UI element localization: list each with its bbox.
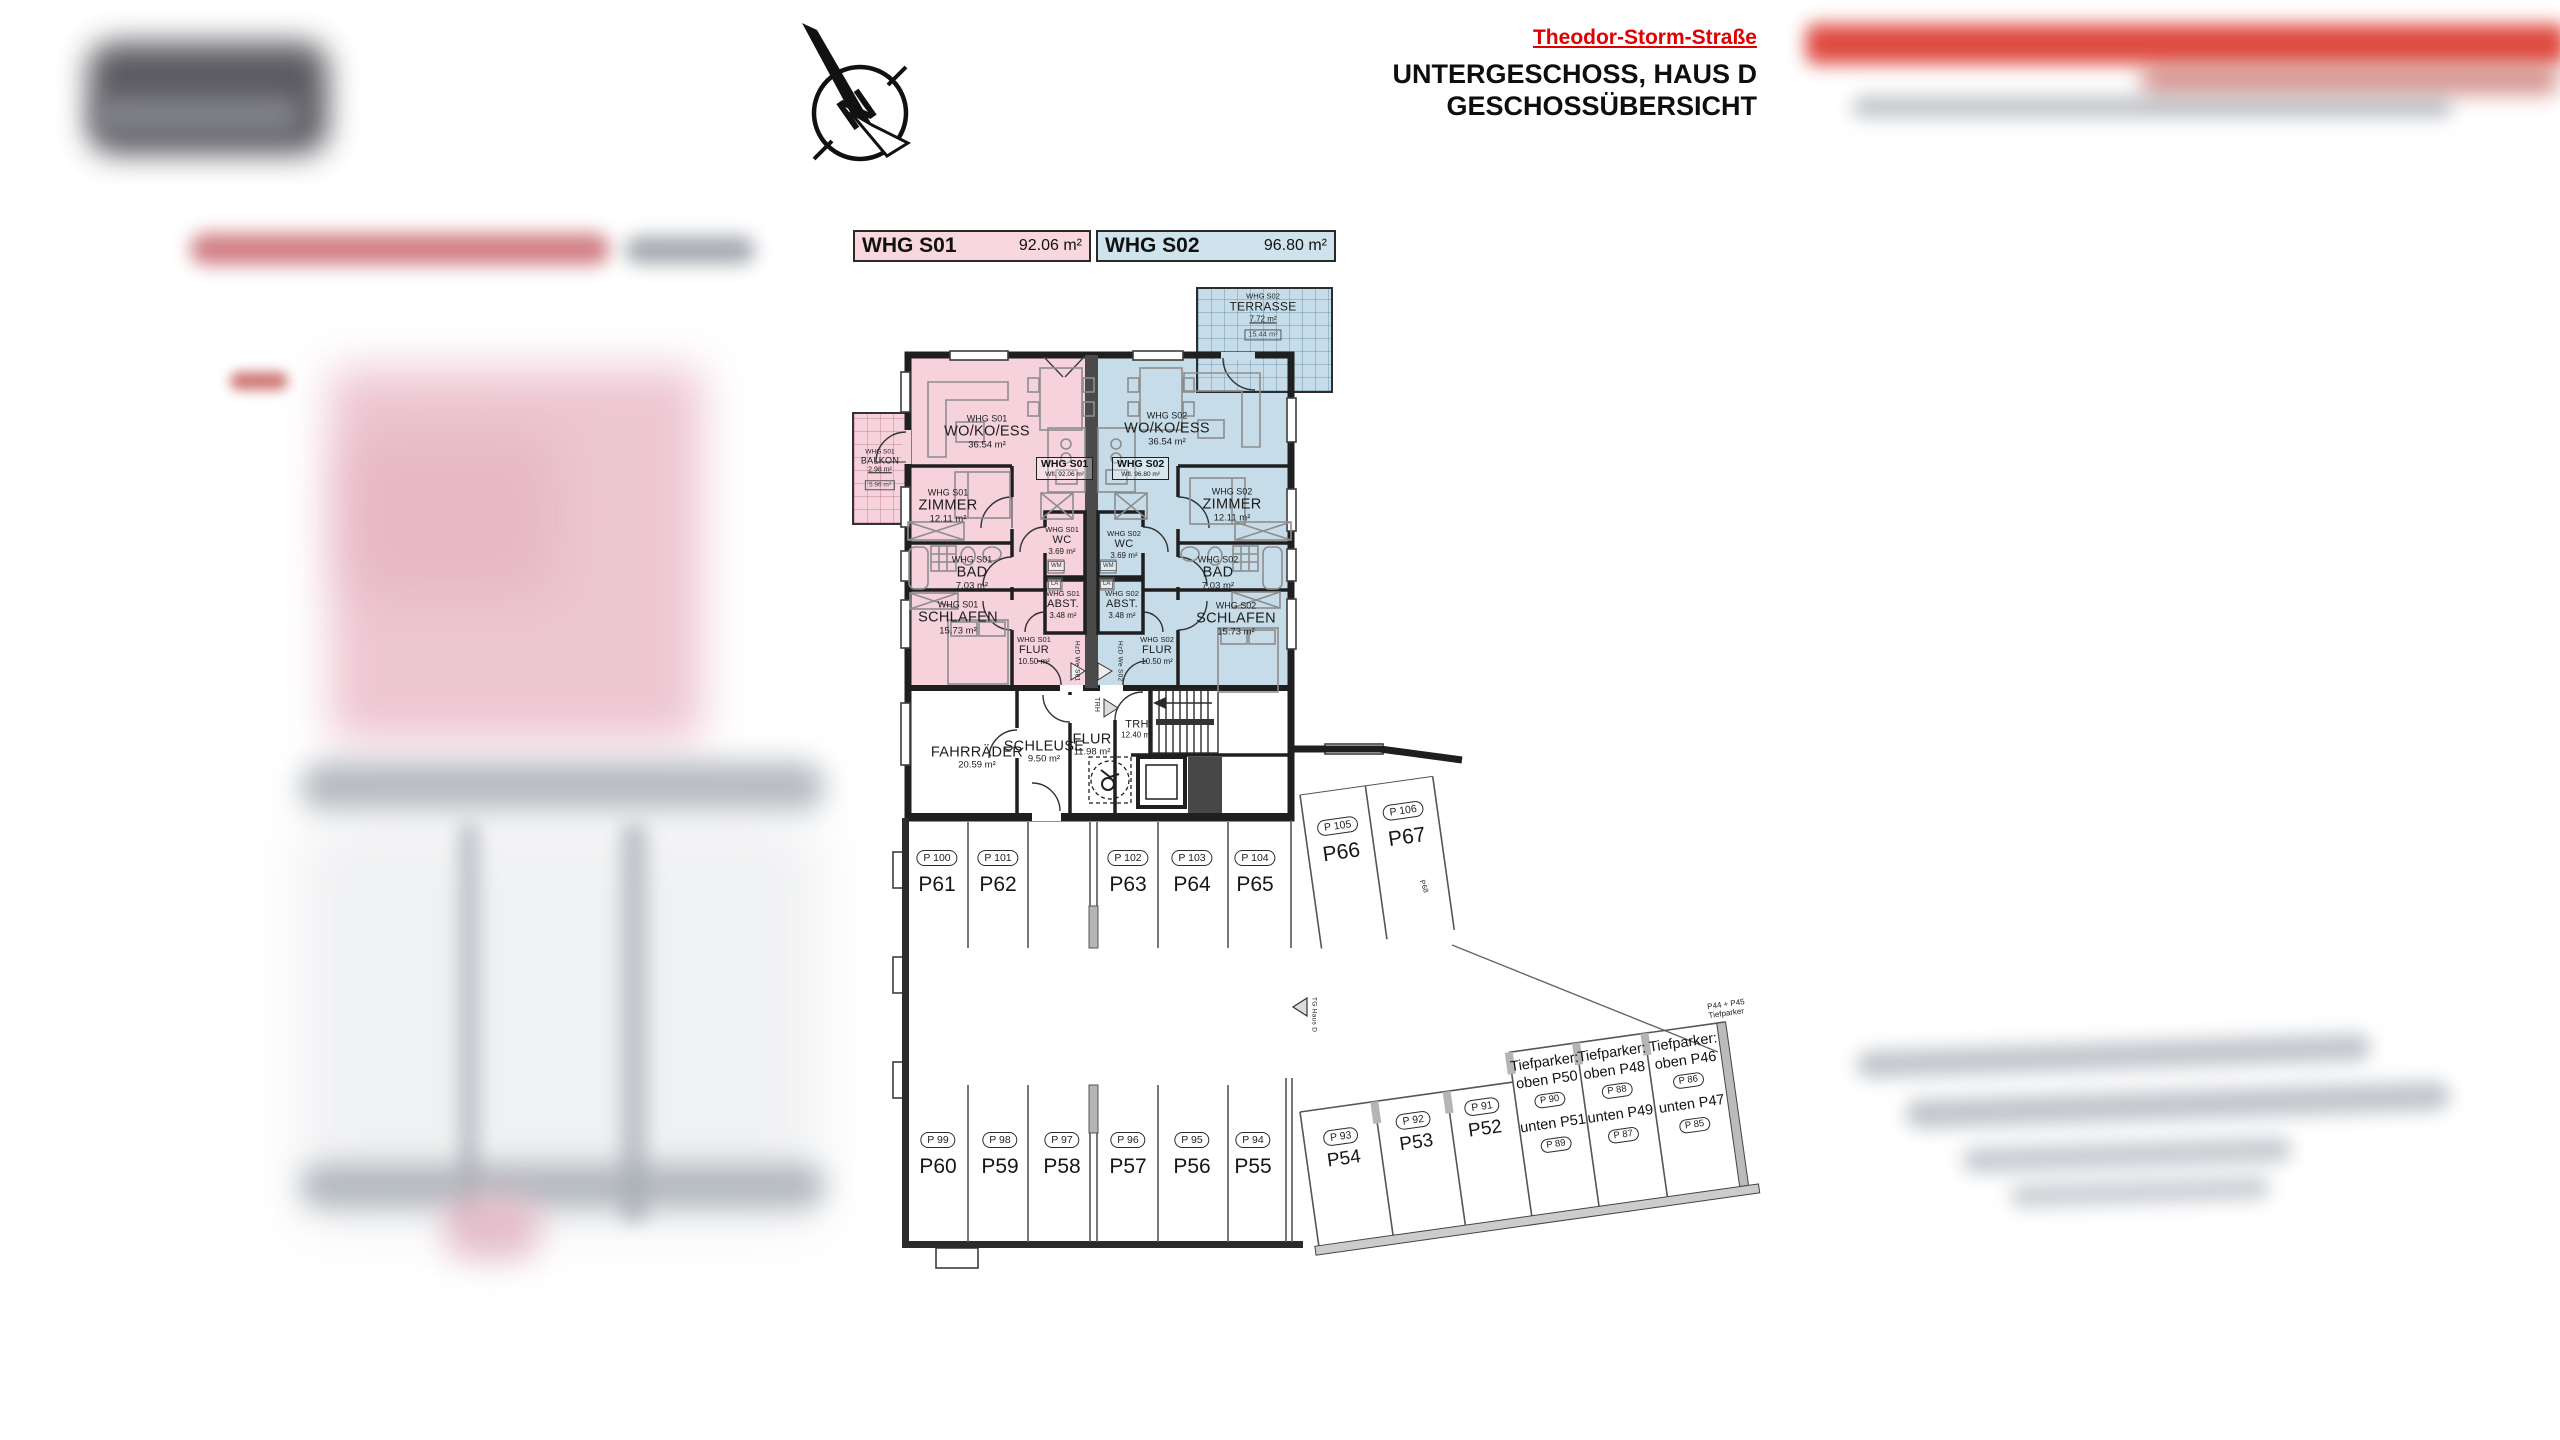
parking-stall-p54: P 93P54 <box>1322 1124 1363 1173</box>
trh-arrow-label: TRH <box>1093 697 1100 712</box>
room-label-s02-schlafen: WHG S02SCHLAFEN15.73 m² <box>1196 600 1276 637</box>
room-label-s01-wohnkoess: WHG S01WO/KO/ESS36.54 m² <box>944 413 1030 450</box>
room-label-s02-abst: WHG S02ABST.3.48 m² <box>1105 590 1139 620</box>
parking-diagonal-group: P 105P66 P 106P67 <box>1300 774 1471 953</box>
parking-stall-p56: P 95P56 <box>1173 1130 1210 1179</box>
parking-stall-p53: P 92P53 <box>1394 1108 1435 1157</box>
balkon-half-area: 5.96 m² <box>865 481 895 490</box>
parking-stall-p66: P 105P66 <box>1316 813 1364 867</box>
room-label-s01-balkon: WHG S01BALKON 2.98 m² 5.96 m² <box>861 448 899 491</box>
fixture-wm-s01: WM <box>1048 561 1065 571</box>
parking-stall-p67: P 106P67 <box>1381 798 1429 852</box>
room-label-s02-bad: WHG S02BAD7.03 m² <box>1198 554 1239 591</box>
terrasse-half-area: 15.44 m² <box>1244 329 1282 339</box>
parking-stall-p59: P 98P59 <box>981 1130 1018 1179</box>
room-label-s02-wohnkoess: WHG S02WO/KO/ESS36.54 m² <box>1124 410 1210 447</box>
parking-stall-p61: P 100P61 <box>916 848 957 897</box>
parking-stall-p62: P 101P62 <box>977 848 1018 897</box>
parking-stall-p52: P 91P52 <box>1463 1094 1504 1143</box>
parking-stall-p55: P 94P55 <box>1234 1130 1271 1179</box>
parking-stall-p64: P 103P64 <box>1171 848 1212 897</box>
parking-stall-p65: P 104P65 <box>1234 848 1275 897</box>
room-label-s01-abst: WHG S01ABST.3.48 m² <box>1046 590 1080 620</box>
entry-label-s02: HzD We S02 <box>1116 641 1123 681</box>
parking-stall-p63: P 102P63 <box>1107 848 1148 897</box>
room-label-s02-wc: WHG S02WC3.69 m² <box>1107 530 1141 560</box>
parking-tiefparker-p48-p49: Tiefparker: oben P48 P 88 unten P49 P 87 <box>1577 1039 1659 1146</box>
unit-tag-s01: WHG S01 Wfl. 92.06 m² <box>1036 457 1093 480</box>
room-label-s02-terrasse: WHG S02TERRASSE 7.72 m² 15.44 m² <box>1229 292 1296 341</box>
room-label-s01-zimmer: WHG S01ZIMMER12.11 m² <box>919 487 978 524</box>
fixture-la-s01: LA <box>1048 579 1061 589</box>
entry-label-s01: HzD We S01 <box>1073 641 1080 681</box>
parking-stall-p57: P 96P57 <box>1109 1130 1146 1179</box>
room-label-s02-zimmer: WHG S02ZIMMER12.11 m² <box>1203 486 1262 523</box>
room-label-flur-common: FLUR11.98 m² <box>1072 731 1111 758</box>
fixture-la-s02: LA <box>1100 579 1113 589</box>
room-label-s01-bad: WHG S01BAD7.03 m² <box>952 554 993 591</box>
parking-tiefparker-p46-p47: Tiefparker: oben P46 P 86 unten P47 P 85 <box>1648 1029 1730 1136</box>
unit-tag-s02: WHG S02 Wfl. 96.80 m² <box>1112 457 1169 480</box>
fixture-wm-s02: WM <box>1100 561 1117 571</box>
room-label-s02-flur: WHG S02FLUR10.50 m² <box>1140 636 1174 666</box>
tg-haus-d-label: TG Haus D <box>1310 997 1317 1032</box>
parking-stall-p58: P 97P58 <box>1043 1130 1080 1179</box>
room-label-trh: TRH12.40 m² <box>1121 718 1153 739</box>
room-label-s01-schlafen: WHG S01SCHLAFEN15.73 m² <box>918 599 998 636</box>
floorplan-geometry <box>0 0 2560 1440</box>
room-label-s01-flur: WHG S01FLUR10.50 m² <box>1017 636 1051 666</box>
parking-stall-p60: P 99P60 <box>919 1130 956 1179</box>
room-label-s01-wc: WHG S01WC3.69 m² <box>1045 526 1079 556</box>
